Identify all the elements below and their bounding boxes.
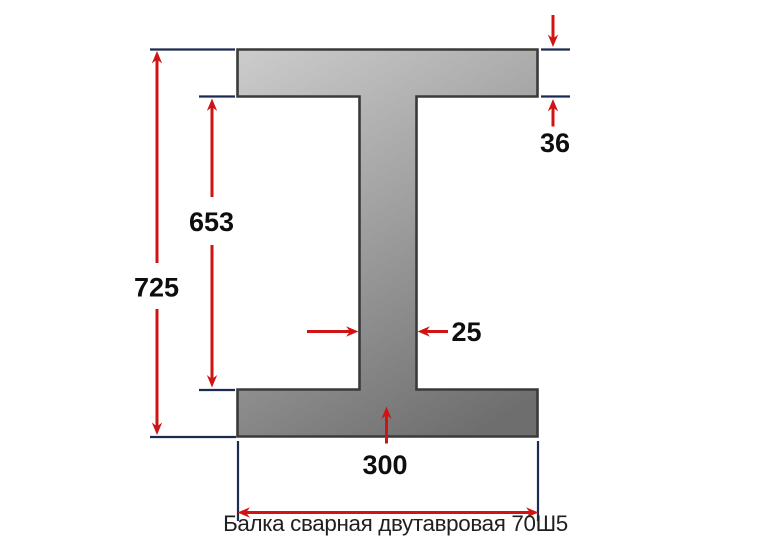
svg-text:25: 25 [451, 317, 481, 347]
svg-text:300: 300 [362, 450, 407, 480]
svg-text:725: 725 [134, 273, 179, 303]
svg-text:36: 36 [540, 128, 570, 158]
svg-text:Балка сварная двутавровая 70Ш5: Балка сварная двутавровая 70Ш5 [223, 511, 568, 536]
svg-text:653: 653 [189, 207, 234, 237]
